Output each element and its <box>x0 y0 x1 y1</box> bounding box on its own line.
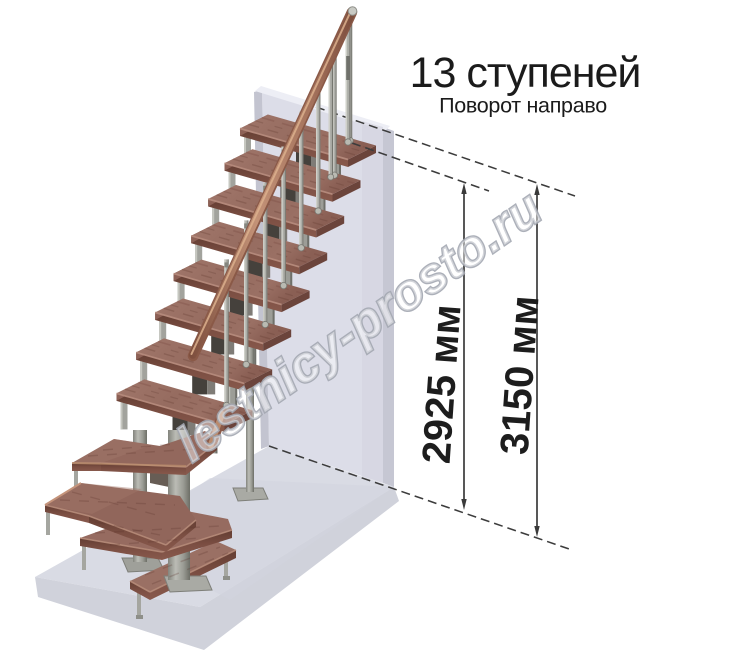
svg-text:Поворот направо: Поворот направо <box>439 94 607 118</box>
svg-text:13 ступеней: 13 ступеней <box>410 49 641 97</box>
